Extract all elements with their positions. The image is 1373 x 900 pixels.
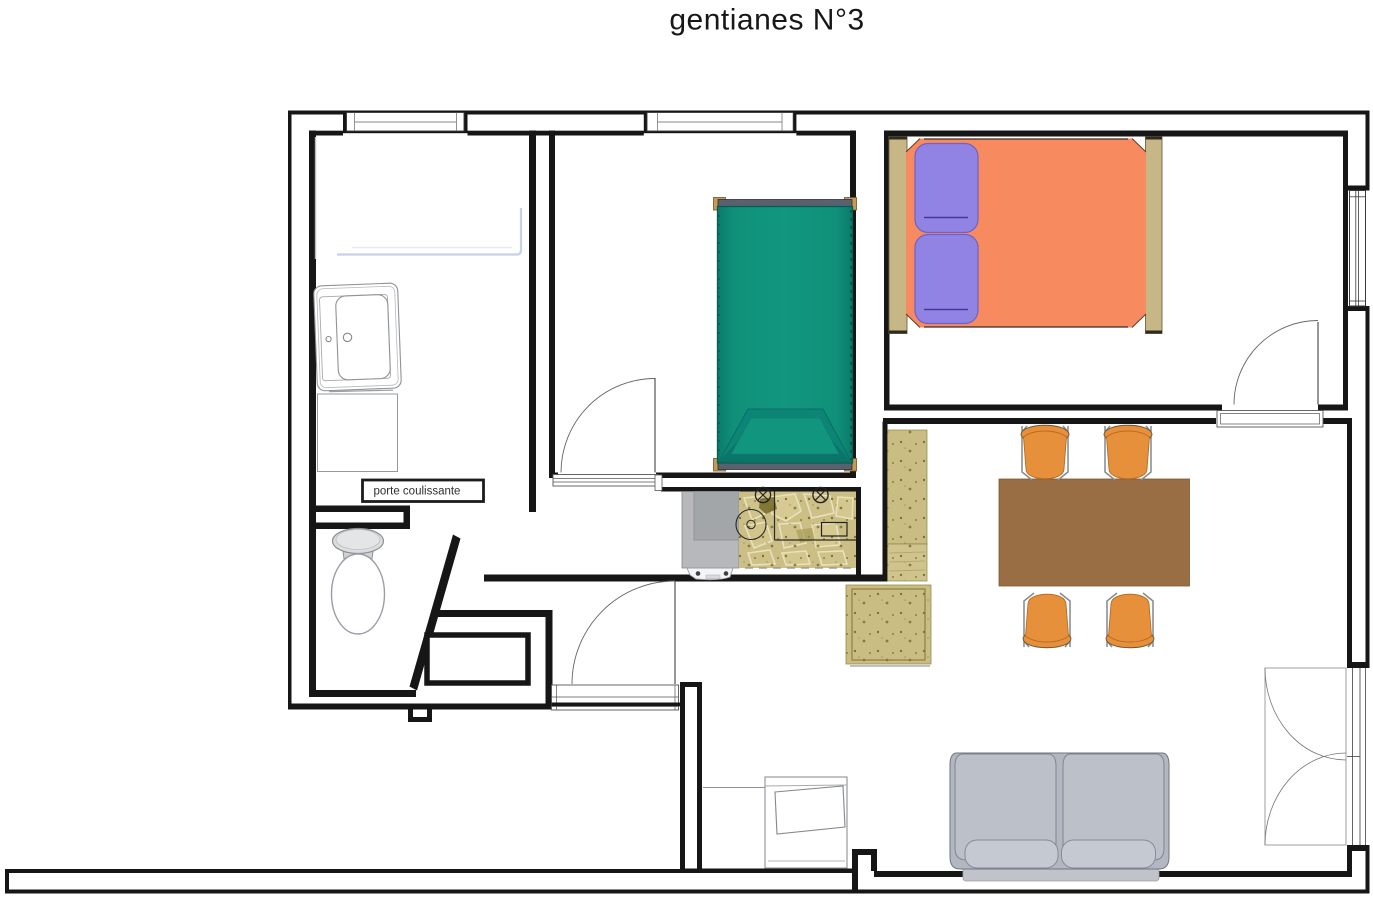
- svg-text:porte coulissante: porte coulissante: [374, 486, 461, 498]
- svg-text:gentianes N°3: gentianes N°3: [669, 4, 864, 37]
